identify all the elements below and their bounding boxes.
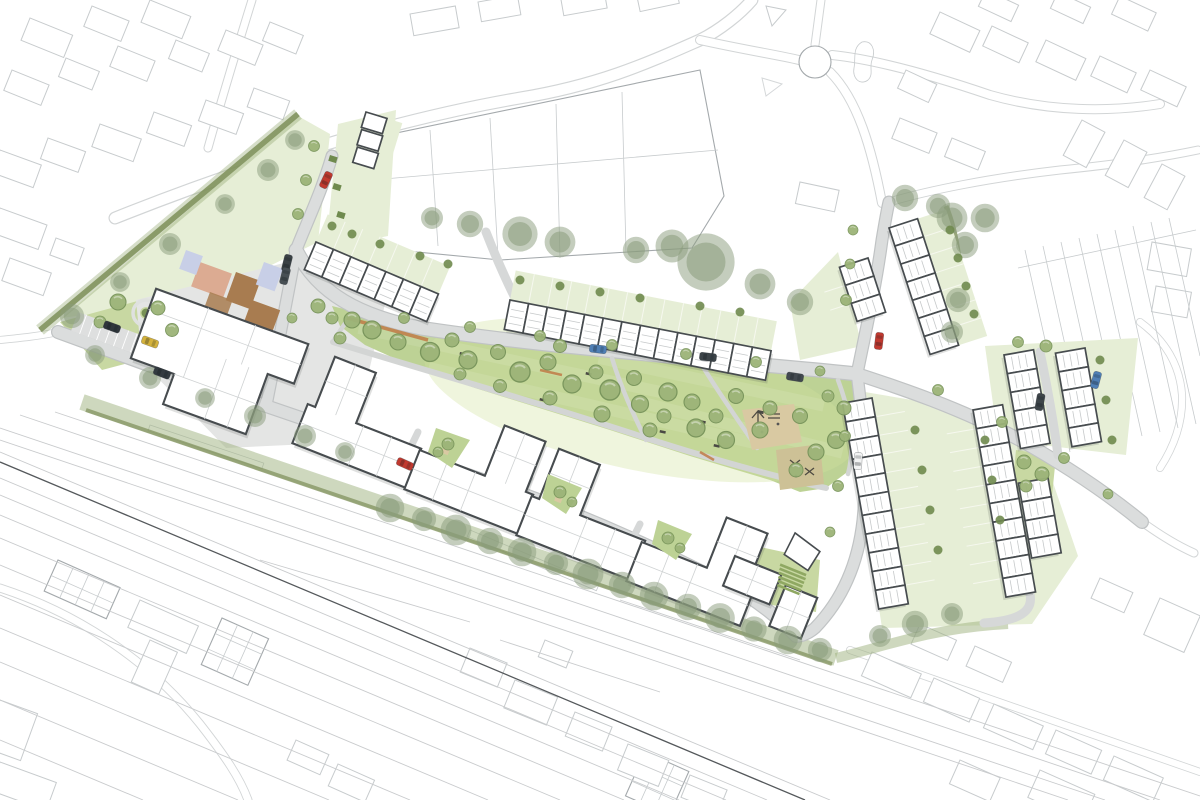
car-red-northeast-street <box>874 332 884 350</box>
garage-grid-b <box>201 618 268 685</box>
site-plan-canvas <box>0 0 1200 800</box>
car-dark-main-street <box>699 352 717 362</box>
green-traffic-island <box>762 78 782 96</box>
terrace-row-northeast-east <box>886 209 988 357</box>
car-white-southeast-street <box>853 452 862 470</box>
masterplan-drawing <box>0 0 1200 800</box>
car-blue-main-street <box>589 344 607 354</box>
